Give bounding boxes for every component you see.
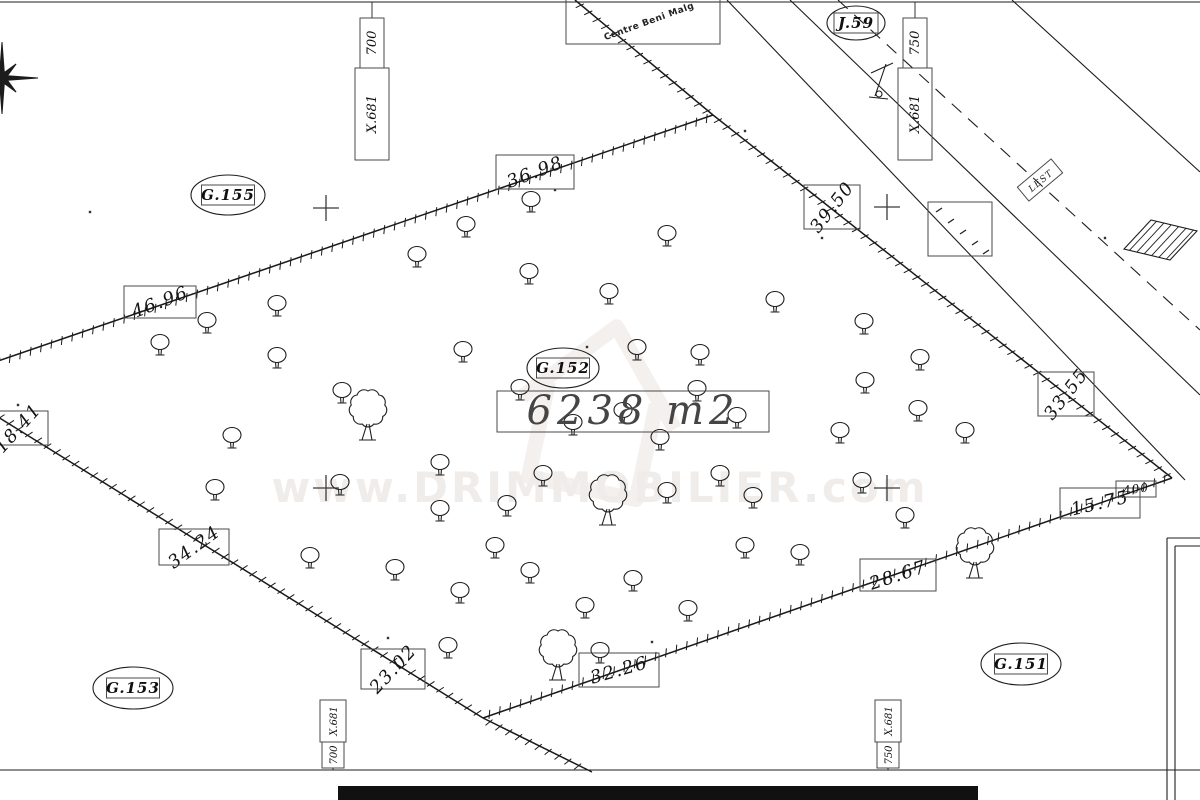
- point-marker: [1104, 237, 1106, 239]
- boundary-tick: [863, 580, 864, 589]
- boundary-tick: [967, 543, 968, 552]
- boundary-tick: [436, 207, 437, 216]
- boundary-tick: [759, 616, 760, 625]
- boundary-tick: [342, 239, 343, 248]
- parcel-id-text: J.59: [835, 14, 874, 32]
- boundary-tick: [582, 677, 583, 686]
- tree-symbol: [223, 428, 241, 449]
- boundary-tick: [842, 587, 843, 596]
- hatched-building: [1124, 220, 1197, 260]
- dimension-text: 15.75: [1069, 487, 1131, 521]
- boundary-tick: [467, 196, 468, 205]
- tree-symbol: [909, 401, 927, 422]
- tree-symbol: [791, 545, 809, 566]
- boundary-tick: [197, 290, 198, 299]
- boundary-tick: [977, 540, 978, 549]
- boundary-tick: [113, 318, 114, 327]
- boundary-tick: [1164, 475, 1165, 484]
- annotation-layer: 36.9846.9639.5033.5518.4134.2423.0232.26…: [0, 2, 1156, 770]
- road-name-group: Centre Beni Malg: [566, 0, 720, 44]
- boundary-tick: [571, 161, 572, 170]
- boundary-tick: [1040, 518, 1041, 527]
- cadastral-map-canvas: www.DRIMMOBILIER.com 36.9846.9639.5033.5…: [0, 0, 1200, 800]
- large-tree-symbol: [539, 630, 576, 680]
- point-marker: [586, 346, 588, 348]
- road-edge-line: [1012, 0, 1200, 172]
- dimension-text: 28.67: [866, 556, 930, 595]
- tree-symbol: [268, 296, 286, 317]
- boundary-tick: [821, 594, 822, 603]
- surveyor-mark: [936, 208, 942, 212]
- tree-symbol: [268, 348, 286, 369]
- tree-symbol: [301, 548, 319, 569]
- boundary-tick: [373, 229, 374, 238]
- boundary-tick: [363, 232, 364, 241]
- boundary-tick: [676, 645, 677, 654]
- tree-symbol: [691, 345, 709, 366]
- grid-coordinate-label: X.681750: [875, 700, 901, 770]
- dimension-label: 36.98: [496, 152, 574, 193]
- grid-coordinate-text: 700: [329, 745, 340, 765]
- road-name-text: Centre Beni Malg: [603, 1, 696, 43]
- road-edge-line: [727, 0, 1185, 480]
- boundary-tick: [20, 350, 21, 359]
- tree-symbol: [831, 423, 849, 444]
- tree-symbol: [956, 423, 974, 444]
- parcel-boundary-line: [483, 718, 592, 772]
- boundary-tick: [259, 268, 260, 277]
- boundary-tick: [654, 132, 655, 141]
- tree-symbol: [520, 264, 538, 285]
- tree-symbol: [521, 563, 539, 584]
- boundary-tick: [728, 627, 729, 636]
- parcel-id-text: G.152: [536, 359, 590, 377]
- boundary-tick: [269, 264, 270, 273]
- dimension-label: 39.50: [804, 178, 860, 237]
- point-marker: [387, 637, 389, 639]
- grid-coordinate-text: 750: [908, 31, 923, 56]
- boundary-tick: [9, 354, 10, 363]
- cadastral-plan: www.DRIMMOBILIER.com 36.9846.9639.5033.5…: [0, 0, 1200, 800]
- surveyor-mark: [960, 230, 966, 234]
- boundary-tick: [41, 343, 42, 352]
- boundary-tick: [425, 211, 426, 220]
- tree-symbol: [624, 571, 642, 592]
- boundary-tick: [832, 590, 833, 599]
- boundary-tick: [738, 623, 739, 632]
- tree-symbol: [658, 226, 676, 247]
- tree-symbol: [206, 480, 224, 501]
- dimension-text: 39.50: [806, 178, 859, 237]
- surveyor-marks-box: [928, 202, 992, 256]
- tree-symbol: [439, 638, 457, 659]
- boundary-tick: [1029, 522, 1030, 531]
- structures-layer: [1124, 220, 1200, 800]
- boundary-tick: [520, 699, 521, 708]
- tree-symbol: [198, 313, 216, 334]
- boundary-tick: [541, 692, 542, 701]
- dimension-text: 46.96: [128, 282, 192, 323]
- area-label-group: 6238 m2: [497, 388, 769, 434]
- boundary-tick: [499, 706, 500, 715]
- grid-coordinate-text: X.681: [884, 706, 895, 736]
- area-text: 6238 m2: [527, 388, 740, 434]
- boundary-tick: [780, 609, 781, 618]
- boundary-tick: [811, 598, 812, 607]
- tree-symbol: [457, 217, 475, 238]
- tree-symbol: [736, 538, 754, 559]
- boundary-tick: [697, 637, 698, 646]
- boundary-tick: [332, 243, 333, 252]
- dimension-label: 28.67: [860, 556, 936, 595]
- tree-symbol: [151, 335, 169, 356]
- parcel-id-text: G.151: [994, 655, 1048, 673]
- parcel-boundary-line: [575, 0, 713, 115]
- boundary-tick: [1050, 514, 1051, 523]
- boundary-tick: [103, 322, 104, 331]
- boundary-tick: [666, 648, 667, 657]
- boundary-tick: [207, 286, 208, 295]
- boundary-tick: [217, 282, 218, 291]
- boundary-tick: [633, 139, 634, 148]
- boundary-tick: [613, 146, 614, 155]
- boundary-tick: [30, 347, 31, 356]
- tree-symbol: [522, 192, 540, 213]
- boundary-tick: [998, 533, 999, 542]
- boundary-tick: [280, 261, 281, 270]
- tree-symbol: [486, 538, 504, 559]
- road-centerline-dashed: [838, 0, 1200, 330]
- boundary-tick: [853, 583, 854, 592]
- boundary-tick: [1154, 478, 1155, 487]
- boundary-tick: [498, 186, 499, 195]
- bottom-banner-bar: [338, 786, 978, 800]
- tree-symbol: [679, 601, 697, 622]
- boundary-tick: [644, 136, 645, 145]
- dimension-label: 33.55: [1038, 365, 1094, 424]
- boundary-tick: [675, 125, 676, 134]
- parcel-id-label: G.152: [527, 348, 599, 388]
- boundary-tick: [457, 200, 458, 209]
- parcel-id-label: J.59: [827, 6, 885, 40]
- grid-cross: [874, 194, 900, 220]
- boundary-tick: [623, 143, 624, 152]
- tree-symbol: [766, 292, 784, 313]
- boundary-tick: [446, 204, 447, 213]
- point-marker: [17, 404, 19, 406]
- boundary-tick: [394, 222, 395, 231]
- boundary-tick: [61, 336, 62, 345]
- boundary-tick: [749, 619, 750, 628]
- parcel-id-text: G.155: [201, 186, 255, 204]
- boundary-tick: [301, 254, 302, 263]
- boundary-tick: [581, 157, 582, 166]
- boundary-tick: [790, 605, 791, 614]
- parcel-boundary-line: [0, 381, 483, 718]
- boundary-tick: [405, 218, 406, 227]
- parcel-boundary-line: [713, 115, 1172, 478]
- boundary-tick: [72, 332, 73, 341]
- boundary-tick: [686, 641, 687, 650]
- dimension-text: 33.55: [1040, 365, 1093, 424]
- dimension-label: 32.26: [579, 652, 659, 688]
- surveyor-mark: [983, 250, 989, 254]
- point-marker: [89, 211, 91, 213]
- boundary-tick: [572, 681, 573, 690]
- north-star: [0, 42, 38, 114]
- boundary-tick: [384, 225, 385, 234]
- boundary-tick: [592, 153, 593, 162]
- tree-symbol: [855, 314, 873, 335]
- boundary-tick: [551, 688, 552, 697]
- grid-cross: [313, 195, 339, 221]
- boundary-tick: [321, 247, 322, 256]
- parcel-id-label: G.153: [93, 667, 173, 709]
- parcel-id-text: G.153: [106, 679, 160, 697]
- tree-symbol: [386, 560, 404, 581]
- grid-coordinate-text: X.681: [365, 95, 380, 134]
- boundary-tick: [353, 236, 354, 245]
- lest-label-group: LEST: [1017, 159, 1062, 201]
- surveyor-mark: [948, 219, 954, 223]
- watermark-text: www.DRIMMOBILIER.com: [271, 463, 928, 512]
- grid-coordinate-text: 700: [365, 31, 380, 56]
- boundary-tick: [510, 703, 511, 712]
- tree-symbol: [600, 284, 618, 305]
- boundary-tick: [51, 340, 52, 349]
- boundary-tick: [717, 630, 718, 639]
- dimension-text: 400: [1121, 480, 1150, 498]
- boundary-tick: [238, 275, 239, 284]
- large-tree-symbol: [349, 390, 386, 440]
- boundary-tick: [1019, 525, 1020, 534]
- boundary-tick: [477, 193, 478, 202]
- boundary-tick: [696, 118, 697, 127]
- parcel-id-label: G.151: [981, 643, 1061, 685]
- boundary-tick: [82, 329, 83, 338]
- compass-rose-icon: [0, 42, 38, 114]
- boundary-tick: [311, 250, 312, 259]
- boundary-tick: [290, 257, 291, 266]
- boundary-tick: [531, 695, 532, 704]
- boundary-tick: [706, 114, 707, 123]
- boundary-tick: [707, 634, 708, 643]
- grid-coordinate-text: X.681: [329, 706, 340, 736]
- tree-symbol: [451, 583, 469, 604]
- grid-coordinate-label: 700X.681: [355, 2, 389, 160]
- dimension-text: 36.98: [504, 152, 567, 193]
- parcel-id-label: G.155: [191, 175, 265, 215]
- tree-symbol: [576, 598, 594, 619]
- boundary-tick: [988, 536, 989, 545]
- large-tree-symbol: [956, 528, 993, 578]
- tree-symbol: [911, 350, 929, 371]
- boundary-tick: [415, 214, 416, 223]
- boundary-tick: [228, 279, 229, 288]
- boundary-tick: [249, 272, 250, 281]
- utility-pole-icon: [869, 63, 893, 99]
- tree-symbol: [333, 383, 351, 404]
- tree-symbol: [856, 373, 874, 394]
- boundary-tick: [665, 128, 666, 137]
- surveyor-mark: [972, 241, 978, 245]
- boundary-tick: [562, 685, 563, 694]
- dimension-label: 18.41: [0, 399, 48, 457]
- boundary-tick: [489, 710, 490, 719]
- dimension-label: 46.96: [124, 282, 196, 323]
- grid-coordinate-text: X.681: [908, 95, 923, 134]
- boundary-tick: [685, 121, 686, 130]
- boundary-tick: [946, 551, 947, 560]
- point-marker: [744, 130, 746, 132]
- boundary-tick: [602, 150, 603, 159]
- dimension-text: 18.41: [0, 399, 46, 457]
- tree-symbol: [408, 247, 426, 268]
- boundary-tick: [769, 612, 770, 621]
- tree-symbol: [454, 342, 472, 363]
- grid-coordinate-label: X.681700: [320, 700, 346, 770]
- boundary-tick: [1008, 529, 1009, 538]
- grid-coordinate-text: 750: [884, 745, 895, 765]
- dimension-label: 34.24: [159, 522, 229, 574]
- boundary-tick: [488, 189, 489, 198]
- boundary-tick: [93, 325, 94, 334]
- point-marker: [651, 641, 653, 643]
- boundary-tick: [801, 601, 802, 610]
